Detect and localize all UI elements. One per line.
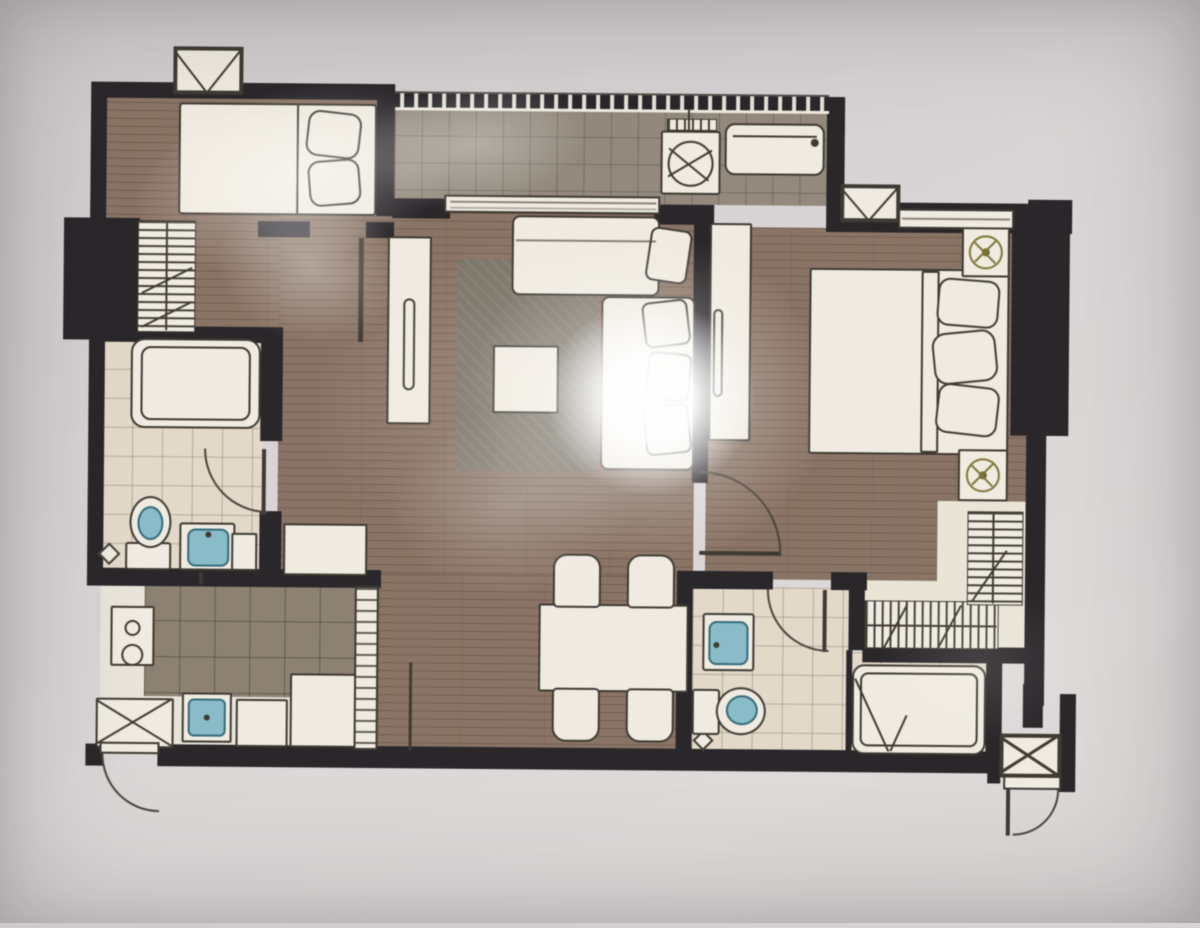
closet-hatch-vertical <box>967 511 1024 605</box>
stove-burner-small <box>124 620 140 636</box>
chaise-pillow-2 <box>645 351 693 403</box>
bedroom2-door-leaf <box>358 238 364 342</box>
wall-shaft-topleft <box>63 217 140 340</box>
wall-bathroom1-right-lower <box>259 511 282 571</box>
master-cabinet-line <box>713 309 724 397</box>
wall-closet-divider <box>848 574 865 650</box>
wall-corner-br-right <box>1059 694 1076 792</box>
bathroom2-sink-tap <box>713 642 719 648</box>
wall-bathroom1-right-upper <box>260 327 283 441</box>
bath1-sink-pedestal <box>199 573 203 585</box>
wall-bedroom2-south-a <box>258 221 310 237</box>
kitchen-sliding-door <box>353 586 378 750</box>
bed2-pillow-1 <box>304 109 363 161</box>
dining-chair-top-right <box>627 554 675 608</box>
balcony-railing <box>395 91 829 114</box>
washer-pipe <box>688 109 690 133</box>
dining-chair-bottom-left <box>552 688 600 742</box>
bench-knob <box>811 139 819 147</box>
washer-control-panel <box>667 119 717 131</box>
bathroom1-shelf <box>231 533 257 571</box>
chaise-pillow-3 <box>642 402 693 456</box>
bed2-pillow-2 <box>307 158 362 208</box>
entry-door-leaf <box>99 742 159 755</box>
stove-burner-large <box>121 644 143 666</box>
tv-screen <box>403 298 416 390</box>
sofa-pillow-1 <box>644 226 694 286</box>
master-pillow-1 <box>936 277 1002 330</box>
exit-threshold <box>1003 776 1061 791</box>
kitchen-counter-2 <box>289 673 356 748</box>
wall-bathroom1-left <box>87 340 105 570</box>
dining-chair-bottom-right <box>626 688 674 742</box>
wall-balcony-bottom-left <box>392 198 450 219</box>
dining-chair-top-left <box>553 554 601 608</box>
dining-table <box>538 603 689 692</box>
wall-master-top-corner <box>1028 200 1072 234</box>
wall-corner-br-stub <box>1023 684 1043 728</box>
kitchen-counter-1 <box>235 699 287 747</box>
chaise-pillow-1 <box>641 298 692 349</box>
master-pillow-3 <box>934 382 1001 439</box>
shower2-inner <box>860 672 979 747</box>
floor-plan <box>0 0 1200 928</box>
wall-right-lower <box>1024 436 1046 706</box>
coffee-table <box>492 345 559 414</box>
balcony-sliding-door <box>444 195 660 215</box>
wall-bathroom2-top-a <box>677 571 773 590</box>
door-arc-entry <box>101 754 160 813</box>
bathroom2-toilet-water <box>726 695 758 725</box>
shower1-inner <box>140 346 251 421</box>
door-leaf-exit <box>1006 790 1010 836</box>
master-pillow-2 <box>931 328 1000 386</box>
bathroom1-toilet-water <box>137 506 163 540</box>
bathroom1-sink-tap <box>205 532 211 538</box>
photo-background <box>0 0 1200 923</box>
hallway-cabinet <box>283 523 367 576</box>
wall-master-right-block <box>1010 234 1070 436</box>
sofa-main <box>511 215 660 296</box>
door-arc-exit <box>1013 790 1059 836</box>
kitchen-sink-tap <box>204 715 210 721</box>
floor-plan-photo: { "meta": {"subject": "two-bedroom apart… <box>0 0 1200 923</box>
balcony-bench <box>725 123 825 176</box>
